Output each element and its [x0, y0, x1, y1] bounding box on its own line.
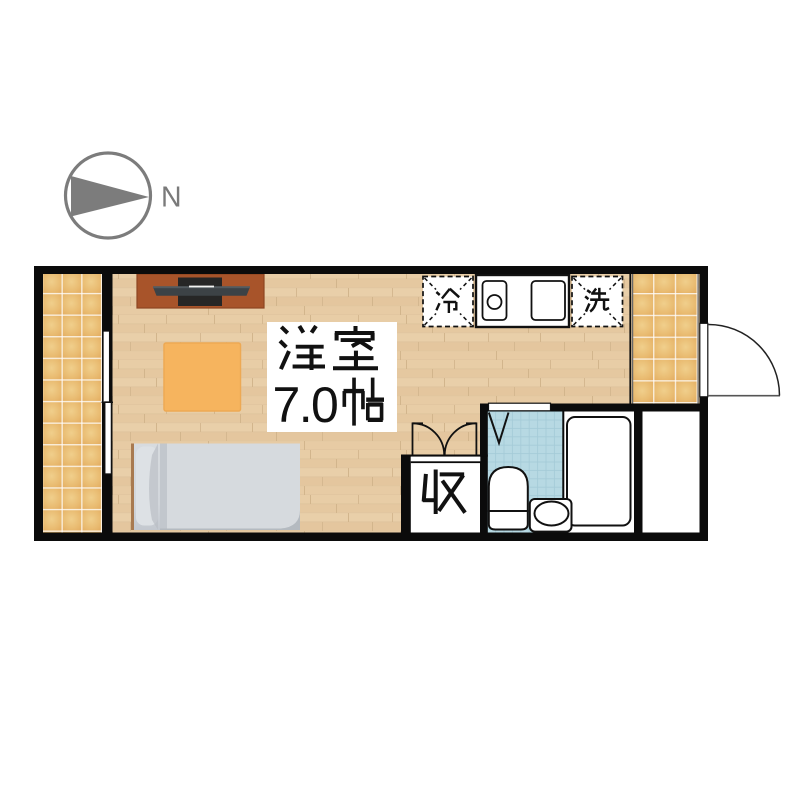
svg-text:7.0: 7.0 — [273, 377, 338, 433]
svg-text:N: N — [161, 182, 182, 214]
